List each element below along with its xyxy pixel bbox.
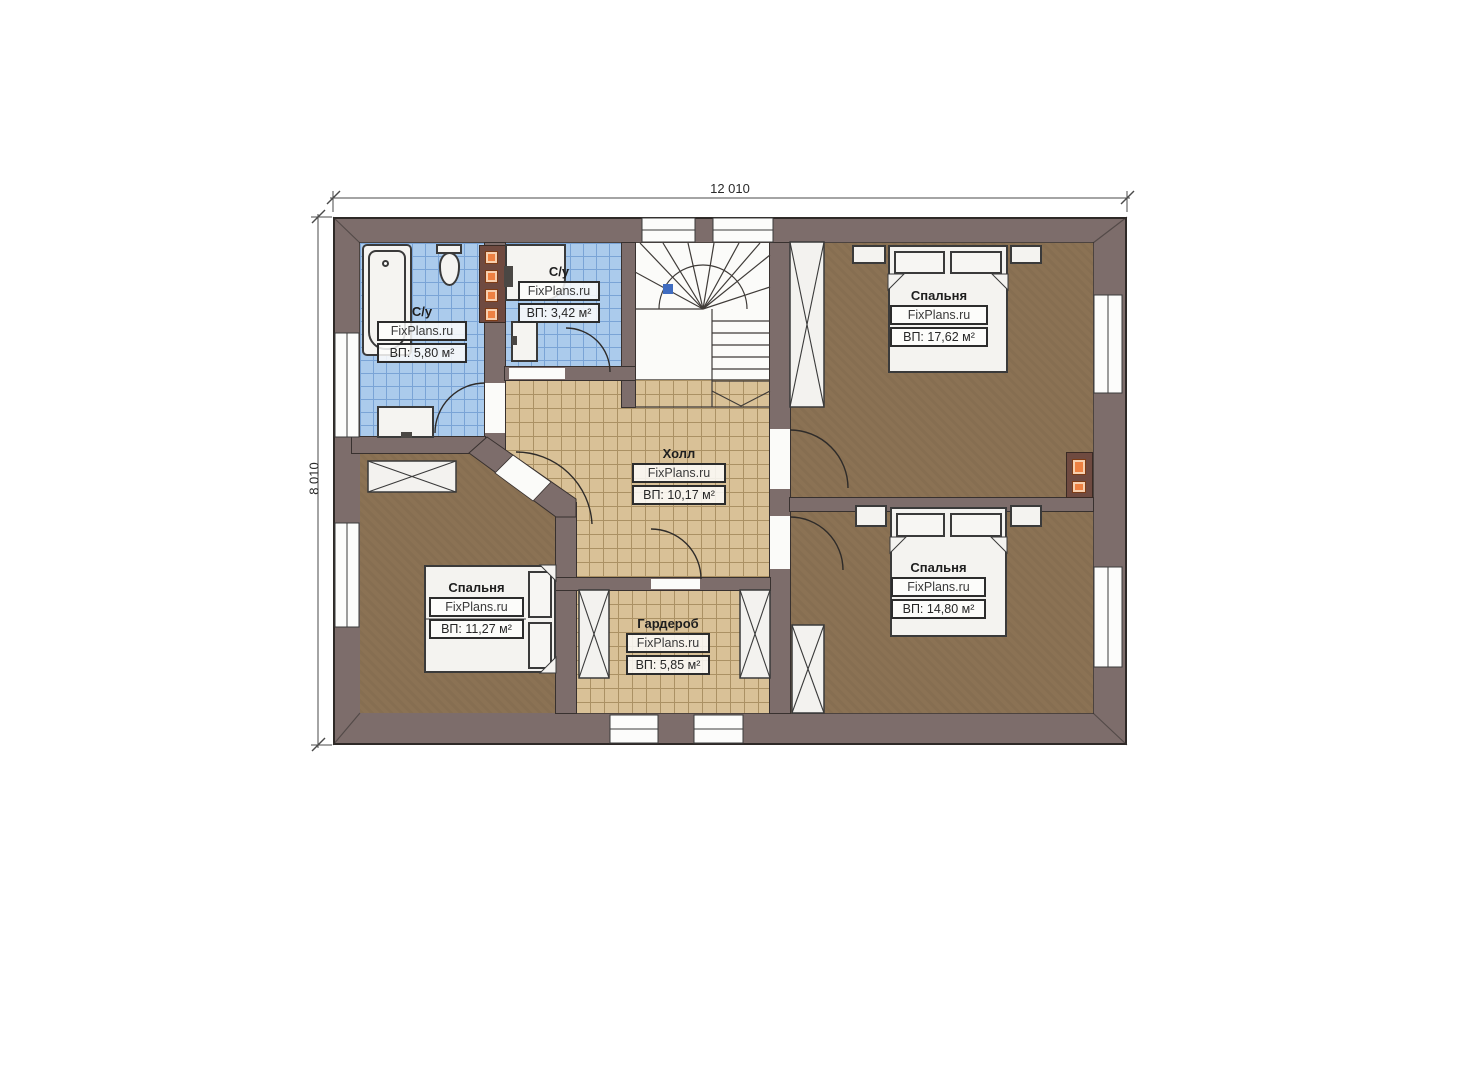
chimney-flue-icon xyxy=(485,251,498,264)
room-name: Спальня xyxy=(911,288,967,303)
room-label-bedroom-bottom-left: Спальня FixPlans.ru ВП: 11,27 м² xyxy=(429,580,524,639)
nightstand xyxy=(855,505,887,527)
area-box: ВП: 3,42 м² xyxy=(518,303,600,323)
room-label-hall: Холл FixPlans.ru ВП: 10,17 м² xyxy=(632,446,726,505)
watermark-box: FixPlans.ru xyxy=(377,321,467,341)
watermark-box: FixPlans.ru xyxy=(429,597,524,617)
door-opening-bath2 xyxy=(509,368,565,379)
wall-bedroom-left-right xyxy=(556,503,576,713)
chimney-flue-icon xyxy=(485,308,498,321)
watermark-box: FixPlans.ru xyxy=(626,633,710,653)
shower-mixer-icon xyxy=(504,266,513,287)
room-name: Гардероб xyxy=(637,616,698,631)
wall-bath1-bottom xyxy=(352,437,485,453)
door-opening-wardrobe xyxy=(651,579,700,589)
area-box: ВП: 5,85 м² xyxy=(626,655,710,675)
door-opening-bedroom-bottom-right xyxy=(770,516,790,569)
area-box: ВП: 17,62 м² xyxy=(890,327,988,347)
chimney-flue-icon xyxy=(485,289,498,302)
room-label-bedroom-top-right: Спальня FixPlans.ru ВП: 17,62 м² xyxy=(890,288,988,347)
door-opening-bath1 xyxy=(485,383,505,433)
dimension-width-label: 12 010 xyxy=(698,181,762,196)
floor-plan-page: { "dimensions": { "width_label": "12 010… xyxy=(0,0,1473,1080)
chimney-flue-icon xyxy=(485,270,498,283)
washing-machine-icon xyxy=(511,321,538,362)
room-name: С/у xyxy=(412,304,432,319)
area-box: ВП: 11,27 м² xyxy=(429,619,524,639)
washer-knob xyxy=(512,336,517,345)
nightstand xyxy=(1010,245,1042,264)
bathtub-drain-icon xyxy=(382,260,389,267)
room-label-bedroom-bottom-right: Спальня FixPlans.ru ВП: 14,80 м² xyxy=(891,560,986,619)
pillow xyxy=(528,571,552,618)
pillow xyxy=(950,513,1002,537)
pillow xyxy=(528,622,552,669)
nightstand xyxy=(852,245,886,264)
door-opening-bedroom-top-right xyxy=(770,429,790,489)
room-name: С/у xyxy=(549,264,569,279)
watermark-box: FixPlans.ru xyxy=(632,463,726,483)
watermark-box: FixPlans.ru xyxy=(891,577,986,597)
fireplace-shaft xyxy=(1066,452,1093,498)
nightstand xyxy=(1010,505,1042,527)
room-name: Холл xyxy=(663,446,696,461)
bathroom-cabinet-icon xyxy=(377,406,434,438)
area-box: ВП: 10,17 м² xyxy=(632,485,726,505)
cabinet-handle xyxy=(401,432,412,438)
area-box: ВП: 5,80 м² xyxy=(377,343,467,363)
wall-stair-left xyxy=(622,243,635,407)
chimney-flue-icon xyxy=(1072,481,1086,493)
room-label-bath2: С/у FixPlans.ru ВП: 3,42 м² xyxy=(518,264,600,323)
room-name: Спальня xyxy=(448,580,504,595)
chimney-shaft xyxy=(479,245,506,323)
chimney-flue-icon xyxy=(1072,459,1086,475)
area-box: ВП: 14,80 м² xyxy=(891,599,986,619)
room-name: Спальня xyxy=(910,560,966,575)
pillow xyxy=(950,251,1002,274)
watermark-box: FixPlans.ru xyxy=(518,281,600,301)
dimension-height-label: 8 010 xyxy=(307,455,322,503)
room-label-wardrobe: Гардероб FixPlans.ru ВП: 5,85 м² xyxy=(626,616,710,675)
watermark-box: FixPlans.ru xyxy=(890,305,988,325)
room-label-bath1: С/у FixPlans.ru ВП: 5,80 м² xyxy=(377,304,467,363)
pillow xyxy=(896,513,945,537)
pillow xyxy=(894,251,945,274)
